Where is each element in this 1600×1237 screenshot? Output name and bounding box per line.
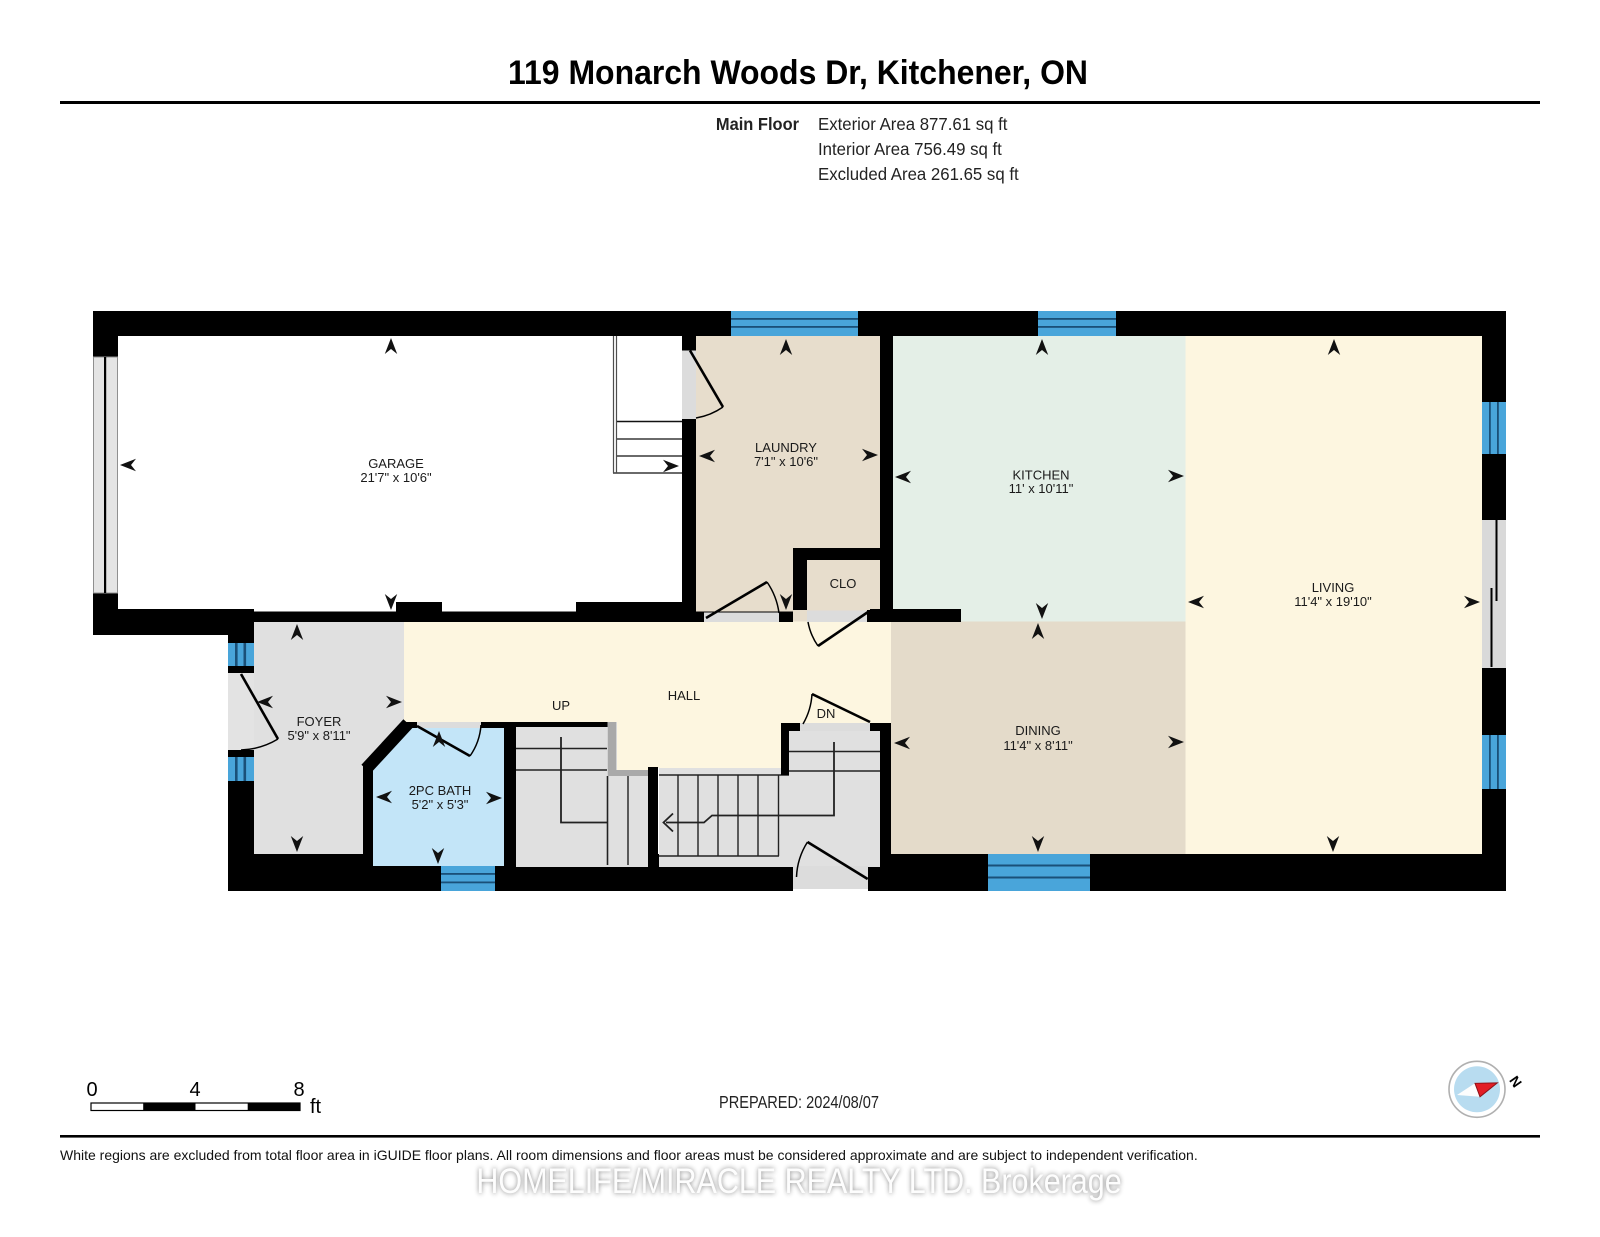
svg-text:Interior Area 756.49 sq ft: Interior Area 756.49 sq ft	[818, 139, 1002, 159]
svg-text:Main Floor: Main Floor	[716, 115, 799, 135]
svg-text:Exterior Area 877.61 sq ft: Exterior Area 877.61 sq ft	[818, 114, 1008, 134]
svg-text:5'2" x 5'3": 5'2" x 5'3"	[412, 797, 469, 812]
svg-text:UP: UP	[552, 698, 570, 713]
svg-text:0: 0	[86, 1079, 97, 1101]
svg-text:PREPARED: 2024/08/07: PREPARED: 2024/08/07	[719, 1093, 879, 1113]
svg-text:21'7" x 10'6": 21'7" x 10'6"	[360, 470, 432, 485]
svg-text:2PC BATH: 2PC BATH	[409, 783, 472, 798]
svg-text:DINING: DINING	[1015, 723, 1061, 738]
svg-text:LIVING: LIVING	[1312, 580, 1355, 595]
svg-text:4: 4	[189, 1079, 200, 1101]
svg-text:DN: DN	[817, 706, 836, 721]
svg-text:5'9" x 8'11": 5'9" x 8'11"	[287, 728, 350, 743]
svg-text:7'1" x 10'6": 7'1" x 10'6"	[754, 454, 818, 469]
svg-text:CLO: CLO	[830, 576, 857, 591]
svg-text:GARAGE: GARAGE	[368, 456, 424, 471]
svg-text:11'4" x 19'10": 11'4" x 19'10"	[1294, 594, 1372, 609]
svg-text:11'4" x 8'11": 11'4" x 8'11"	[1003, 738, 1073, 753]
svg-text:ft: ft	[310, 1096, 322, 1118]
svg-text:LAUNDRY: LAUNDRY	[755, 440, 817, 455]
svg-text:8: 8	[293, 1079, 304, 1101]
svg-text:11' x 10'11": 11' x 10'11"	[1009, 481, 1074, 496]
svg-text:119 Monarch Woods Dr, Kitchene: 119 Monarch Woods Dr, Kitchener, ON	[508, 53, 1088, 91]
svg-text:HALL: HALL	[668, 688, 701, 703]
svg-text:FOYER: FOYER	[297, 714, 342, 729]
svg-text:HOMELIFE/MIRACLE REALTY LTD. B: HOMELIFE/MIRACLE REALTY LTD. Brokerage	[476, 1161, 1121, 1200]
svg-text:Excluded Area 261.65 sq ft: Excluded Area 261.65 sq ft	[818, 164, 1019, 184]
